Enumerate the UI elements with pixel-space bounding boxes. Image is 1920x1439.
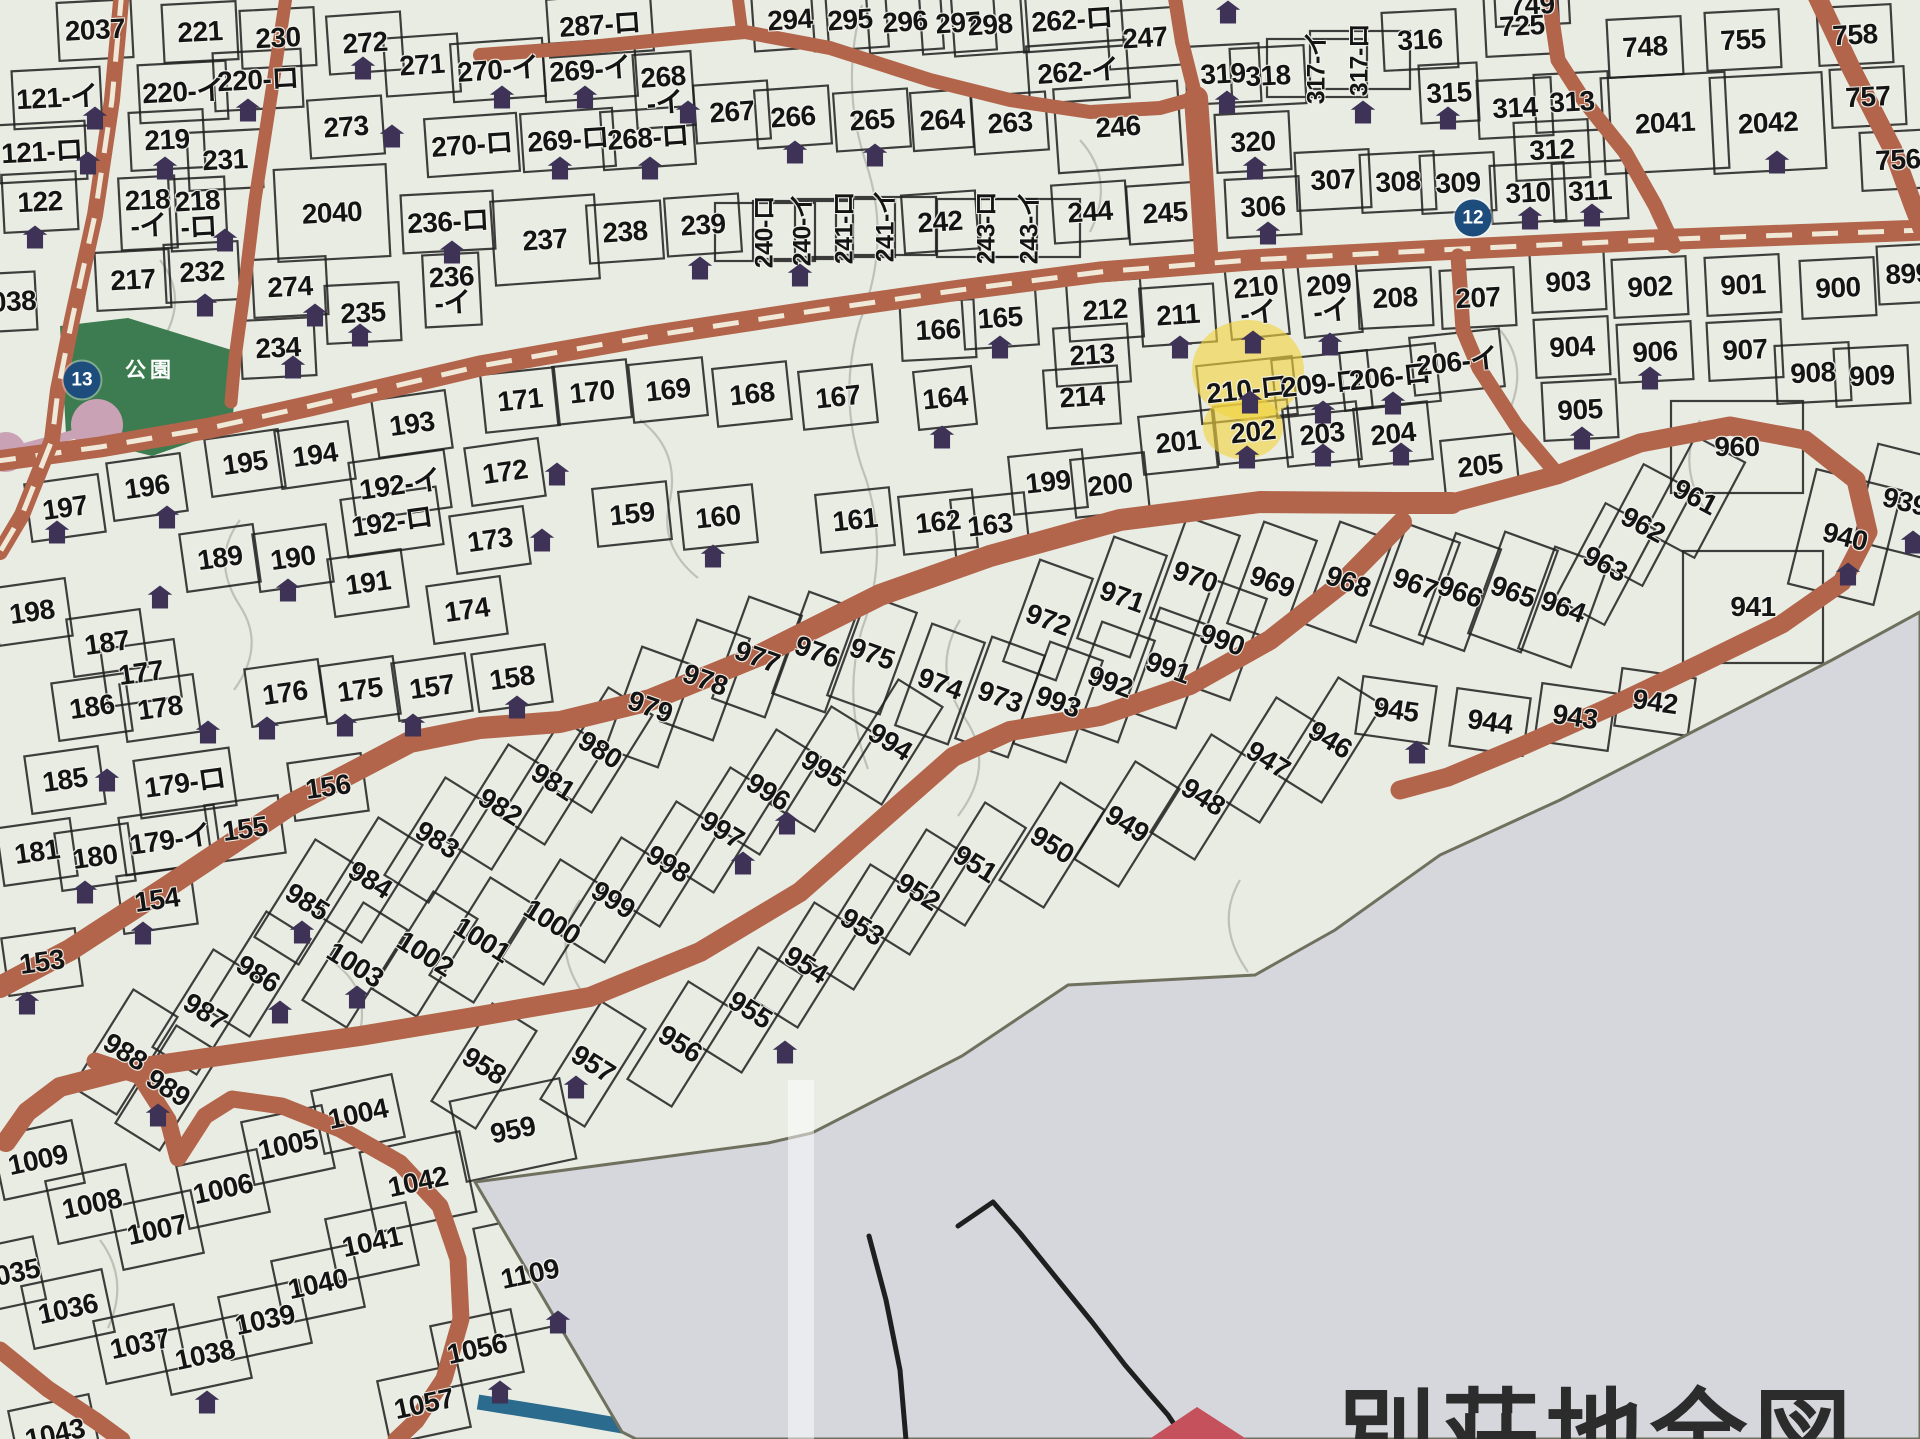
parcel-label: 232 (179, 258, 226, 286)
parcel-label: 175 (336, 674, 384, 706)
parcel-label: 121-ロ (1, 137, 84, 167)
parcel-label: 318 (1245, 62, 1292, 90)
parcel-label: 310 (1505, 179, 1552, 207)
parcel-label: 2042 (1737, 109, 1799, 138)
parcel-label: 202 (1229, 417, 1277, 447)
parcel-label: 2041 (1634, 109, 1696, 138)
parcel-label: 180 (71, 841, 119, 873)
parcel-label: 214 (1059, 383, 1106, 412)
parcel-label: 241-イ (875, 190, 898, 263)
parcel-label: 237 (522, 226, 569, 255)
parcel-label: 211 (1155, 301, 1200, 330)
parcel-label: 317-イ (1306, 32, 1329, 105)
parcel-label: 160 (694, 502, 742, 532)
parcel-label: 204 (1369, 419, 1417, 449)
park-label: 公園 (125, 354, 175, 384)
parcel-label: 313 (1549, 88, 1596, 116)
parcel-label: 307 (1310, 166, 1357, 194)
parcel-label: 161 (831, 505, 879, 535)
parcel-label: 243-イ (1019, 192, 1042, 265)
parcel-label: 941 (1730, 594, 1775, 620)
parcel-label: 197 (41, 492, 89, 524)
parcel-label: 122 (17, 188, 64, 216)
parcel-label: 247 (1122, 24, 1169, 53)
parcel-label: 239 (680, 211, 727, 240)
parcel-label: 298 (967, 11, 1014, 40)
parcel-label: 294 (767, 6, 814, 35)
parcel-label: 187 (83, 627, 131, 659)
parcel-label: 319 (1200, 60, 1247, 88)
parcel-label: 1038 (0, 288, 37, 317)
parcel-label: 243-ロ (976, 192, 999, 265)
parcel-label: 264 (919, 106, 966, 135)
parcel-label: 263 (987, 109, 1034, 138)
parcel-label: 757 (1845, 83, 1892, 111)
parcel-label: 235 (340, 299, 387, 327)
parcel-label: 208 (1372, 284, 1419, 312)
parcel-label: 169 (644, 375, 692, 405)
parcel-label: 908 (1790, 359, 1837, 387)
parcel-label: 177 (117, 657, 165, 689)
parcel-label: 171 (496, 385, 544, 415)
parcel-label: 213 (1069, 341, 1116, 370)
parcel-label: 314 (1492, 94, 1539, 122)
parcel-label: 268-ロ (606, 122, 689, 153)
parcel-label: 164 (921, 383, 969, 413)
parcel-label: 193 (388, 408, 436, 440)
parcel-label: 230 (255, 24, 302, 52)
parcel-label: 312 (1529, 136, 1576, 164)
parcel-label: 240-イ (792, 194, 815, 267)
parcel-label: 245 (1142, 199, 1189, 228)
parcel-label: 270-イ (456, 54, 539, 85)
parcel-label: 199 (1024, 467, 1072, 497)
parcel-label: 172 (481, 456, 529, 488)
parcel-label: 198 (8, 596, 56, 628)
parcel-label: 165 (977, 304, 1024, 333)
parcel-label: 210 -イ (1232, 272, 1282, 328)
parcel-label: 311 (1568, 177, 1613, 205)
parcel-label: 272 (342, 29, 389, 58)
parcel-label: 209 -イ (1305, 270, 1355, 326)
parcel-label: 190 (269, 542, 317, 574)
parcel-label: 242 (917, 208, 964, 237)
parcel-label: 163 (966, 510, 1014, 540)
parcel-label: 262-ロ (1030, 4, 1113, 35)
route-number-marker: 12 (1455, 200, 1492, 237)
parcel-label: 756 (1875, 146, 1920, 174)
parcel-label: 176 (261, 677, 309, 709)
parcel-label: 306 (1240, 193, 1287, 221)
parcel-label: 905 (1557, 396, 1604, 424)
parcel-label: 207 (1455, 284, 1502, 312)
villa-area-map: 2037221230121-イ220-イ220-ロ219231121-ロ1222… (0, 0, 1920, 1439)
parcel-label: 909 (1849, 362, 1896, 390)
map-title: 別荘地全図 (1338, 1356, 1858, 1439)
parcel-label: 195 (221, 447, 269, 479)
parcel-label: 267 (709, 98, 756, 127)
parcel-label: 244 (1067, 198, 1114, 227)
parcel-label: 317-ロ (1349, 24, 1372, 97)
parcel-label: 218 -ロ (174, 187, 222, 241)
parcel-label: 269-イ (548, 54, 631, 85)
parcel-label: 907 (1722, 336, 1769, 364)
parcel-label: 153 (18, 946, 66, 978)
parcel-label: 219 (144, 126, 191, 154)
parcel-label: 904 (1549, 333, 1596, 361)
parcel-label: 246 (1095, 113, 1142, 142)
parcel-label: 265 (849, 106, 896, 135)
parcel-label: 901 (1720, 271, 1767, 299)
parcel-label: 194 (291, 439, 339, 471)
parcel-label: 196 (123, 471, 171, 503)
parcel-label: 308 (1375, 168, 1422, 196)
parcel-label: 906 (1632, 338, 1679, 366)
parcel-label: 206-イ (1415, 345, 1499, 379)
parcel-label: 218 -イ (124, 186, 172, 240)
parcel-label: 960 (1714, 434, 1759, 460)
parcel-label: 315 (1426, 79, 1473, 107)
parcel-label: 221 (177, 18, 224, 46)
parcel-label: 170 (568, 377, 616, 407)
parcel-label: 295 (827, 6, 874, 35)
parcel-label: 174 (443, 594, 491, 626)
parcel-label: 725 (1499, 12, 1546, 40)
parcel-label: 186 (68, 691, 116, 723)
route-number-marker: 13 (64, 362, 101, 399)
parcel-label: 270-ロ (430, 129, 513, 160)
parcel-label: 191 (344, 567, 392, 599)
parcel-label: 316 (1397, 26, 1444, 54)
parcel-label: 155 (221, 813, 269, 845)
parcel-label: 262-イ (1036, 56, 1119, 87)
parcel-label: 178 (136, 692, 184, 724)
parcel-label: 274 (267, 273, 314, 301)
parcel-label: 755 (1720, 26, 1767, 54)
parcel-label: 181 (13, 836, 61, 868)
parcel-label: 266 (770, 103, 817, 132)
parcel-label: 205 (1456, 451, 1504, 481)
parcel-label: 758 (1832, 21, 1879, 49)
parcel-label: 173 (466, 524, 514, 556)
parcel-label: 900 (1815, 274, 1862, 302)
parcel-label: 296 (882, 8, 929, 37)
parcel-label: 185 (41, 764, 89, 796)
parcel-label: 2040 (301, 199, 363, 228)
parcel-label: 158 (488, 662, 536, 694)
parcel-label: 943 (1551, 701, 1599, 733)
parcel-label: 2037 (64, 16, 126, 45)
parcel-label: 903 (1545, 268, 1592, 296)
parcel-label: 217 (110, 266, 157, 294)
parcel-label: 902 (1627, 273, 1674, 301)
parcel-label: 945 (1372, 694, 1420, 726)
parcel-label: 273 (323, 113, 370, 142)
parcel-label: 212 (1082, 296, 1129, 325)
parcel-label: 309 (1435, 169, 1482, 197)
parcel-label: 162 (914, 507, 962, 537)
parcel-label: 944 (1466, 706, 1514, 738)
parcel-label: 238 (602, 218, 649, 247)
parcel-label: 320 (1230, 128, 1277, 156)
parcel-label: 236-ロ (407, 207, 490, 237)
parcel-label: 271 (399, 51, 446, 80)
parcel-label: 159 (608, 499, 656, 529)
parcel-label: 166 (915, 316, 962, 344)
parcel-label: 236 -イ (428, 263, 476, 317)
parcel-label: 154 (133, 884, 181, 916)
parcel-label: 899 (1885, 260, 1920, 288)
parcel-label: 167 (814, 382, 862, 412)
parcel-label: 189 (196, 542, 244, 574)
parcel-label: 201 (1154, 427, 1202, 457)
parcel-label: 220-イ (142, 77, 225, 107)
parcel-label: 157 (408, 671, 456, 703)
parcel-label: 240-ロ (754, 196, 777, 269)
parcel-label: 269-ロ (526, 124, 609, 155)
parcel-label: 748 (1622, 33, 1669, 61)
parcel-label: 121-イ (16, 83, 99, 113)
parcel-label: 200 (1086, 470, 1134, 500)
parcel-label: 231 (202, 146, 249, 174)
parcel-label: 942 (1631, 686, 1679, 718)
parcel-label: 241-ロ (834, 192, 857, 265)
parcel-label: 168 (728, 379, 776, 409)
parcel-label: 220-ロ (217, 65, 300, 95)
parcel-label: 287-ロ (558, 9, 641, 40)
parcel-label: 156 (304, 771, 352, 803)
